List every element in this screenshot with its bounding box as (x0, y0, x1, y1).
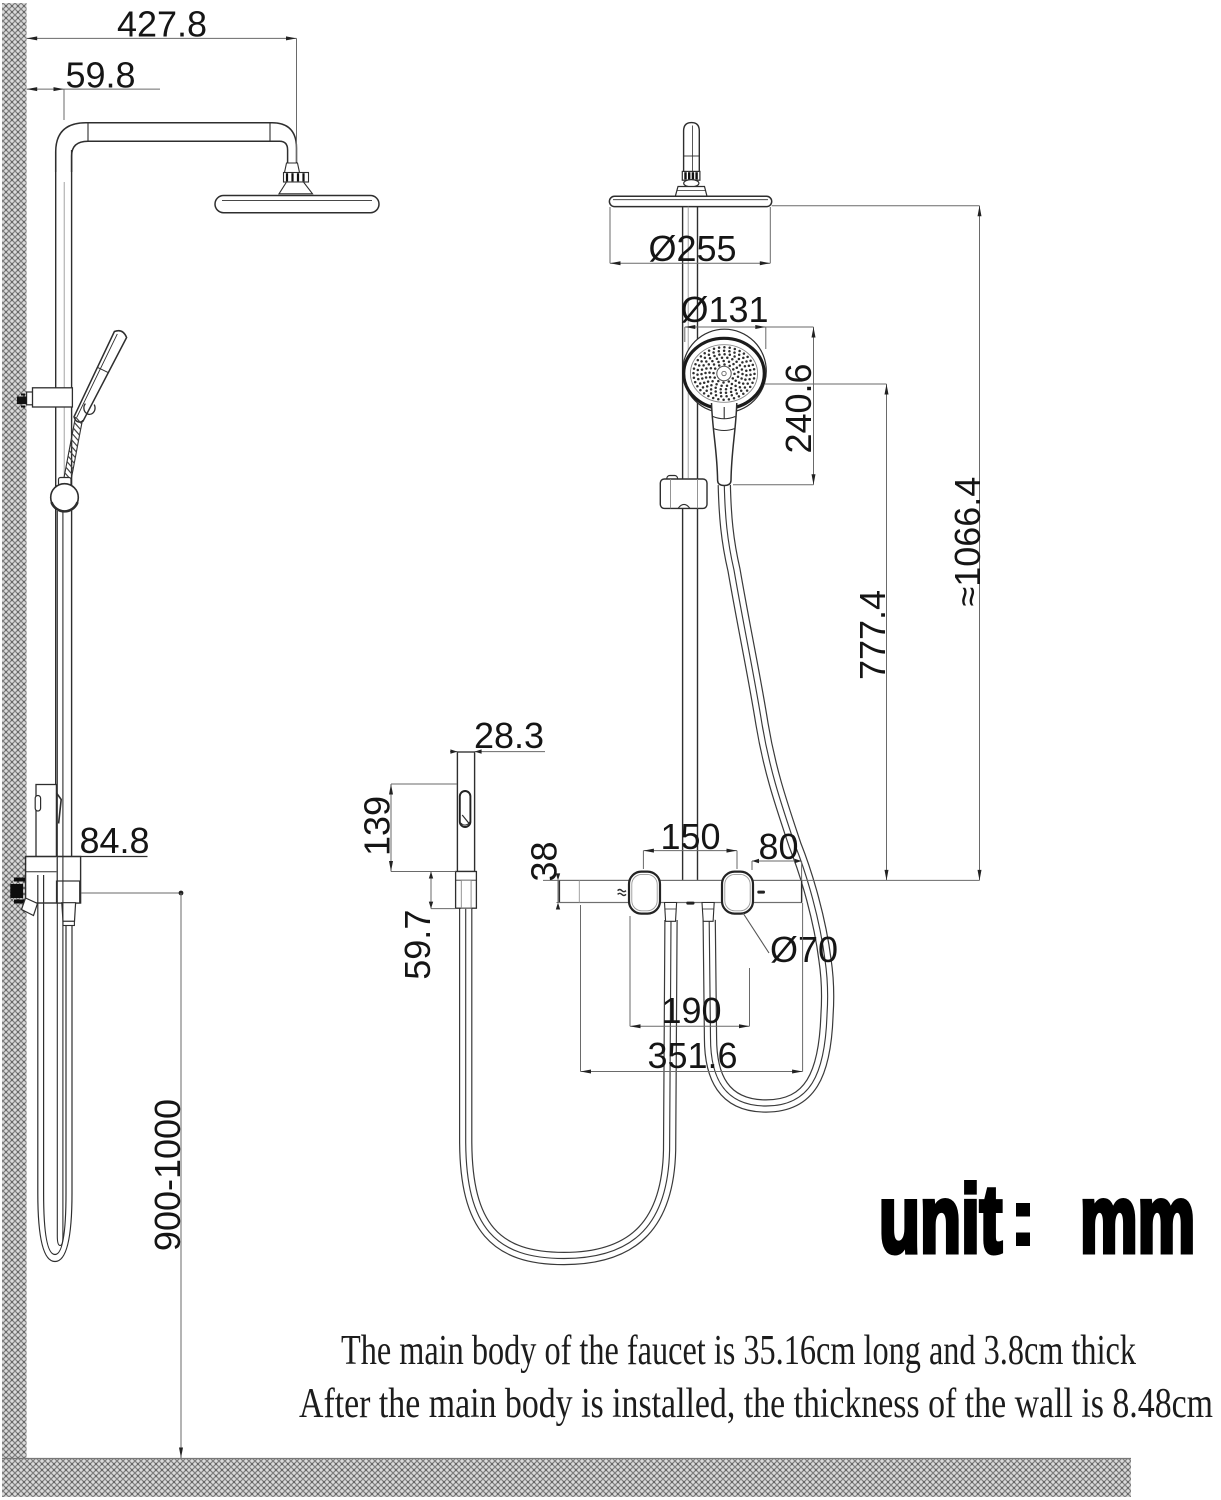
svg-text:Ø255: Ø255 (648, 228, 736, 269)
svg-text:777.4: 777.4 (852, 590, 893, 680)
svg-text:139: 139 (357, 796, 398, 856)
svg-text:150: 150 (660, 816, 720, 857)
svg-text:Ø131: Ø131 (680, 289, 768, 330)
svg-text:900-1000: 900-1000 (147, 1099, 188, 1251)
svg-text:190: 190 (661, 990, 721, 1031)
svg-text:28.3: 28.3 (474, 715, 544, 756)
svg-text:mm: mm (1080, 1166, 1195, 1273)
svg-text:The main body of the faucet is: The main body of the faucet is 35.16cm l… (341, 1328, 1136, 1374)
svg-text:427.8: 427.8 (117, 4, 207, 45)
svg-text:84.8: 84.8 (79, 820, 149, 861)
svg-text:≈1066.4: ≈1066.4 (947, 477, 988, 607)
svg-text:351.6: 351.6 (647, 1035, 737, 1076)
svg-text:unit: unit (879, 1165, 1002, 1273)
svg-text:Ø70: Ø70 (770, 929, 838, 970)
svg-text:80: 80 (758, 826, 798, 867)
svg-text:After the main body is install: After the main body is installed, the th… (299, 1381, 1213, 1427)
svg-text:59.8: 59.8 (65, 55, 135, 96)
svg-text:59.7: 59.7 (397, 910, 438, 980)
svg-text:38: 38 (524, 841, 565, 881)
svg-text:240.6: 240.6 (778, 363, 819, 453)
